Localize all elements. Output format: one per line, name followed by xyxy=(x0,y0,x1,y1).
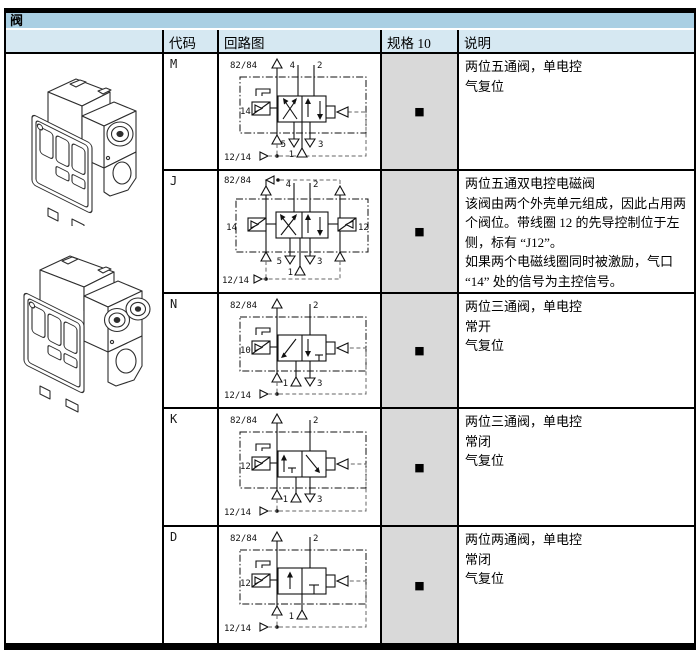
svg-text:4: 4 xyxy=(290,61,295,71)
svg-text:4: 4 xyxy=(286,180,291,190)
desc-cell-k: 两位三通阀，单电控 常闭 气复位 xyxy=(457,409,694,527)
desc-line: 两位五通双电控电磁阀 xyxy=(465,174,688,194)
svg-text:82/84: 82/84 xyxy=(224,176,251,186)
desc-line: 常闭 xyxy=(465,550,688,570)
desc-line: 气复位 xyxy=(465,77,688,97)
desc-cell-n: 两位三通阀，单电控 常开 气复位 xyxy=(457,294,694,409)
svg-text:12: 12 xyxy=(240,579,251,589)
svg-text:2: 2 xyxy=(313,301,318,311)
header-image-column xyxy=(6,30,162,54)
spec-marker: ■ xyxy=(414,462,424,473)
svg-text:12/14: 12/14 xyxy=(224,508,251,518)
desc-cell-d: 两位两通阀，单电控 常闭 气复位 xyxy=(457,527,694,643)
spec-cell-m: ■ xyxy=(380,54,457,171)
svg-text:1: 1 xyxy=(283,495,288,505)
desc-line: 气复位 xyxy=(465,569,688,589)
svg-text:82/84: 82/84 xyxy=(230,416,257,426)
header-code: 代码 xyxy=(162,30,217,54)
desc-line: 常闭 xyxy=(465,432,688,452)
svg-text:82/84: 82/84 xyxy=(230,301,257,311)
svg-text:3: 3 xyxy=(317,379,322,389)
valve-iso-drawing-single xyxy=(14,58,154,226)
circuit-diagram-3-2-nc: 82/84 12/14 xyxy=(220,410,380,526)
valve-iso-drawing-double xyxy=(10,234,158,420)
svg-text:12: 12 xyxy=(358,223,369,233)
circuit-diagram-5-2-single: 82/84 12/14 xyxy=(220,55,380,170)
desc-line: 该阀由两个外壳单元组成，因此占用两 xyxy=(465,194,688,214)
circuit-diagram-3-2-no: 82/84 12/14 xyxy=(220,295,380,408)
circuit-cell-n: 82/84 12/14 xyxy=(217,294,380,409)
desc-cell-j: 两位五通双电控电磁阀 该阀由两个外壳单元组成，因此占用两 个阀位。带线圈 12 … xyxy=(457,171,694,294)
spec-marker: ■ xyxy=(414,580,424,591)
desc-line: 两位五通阀，单电控 xyxy=(465,57,688,77)
circuit-cell-m: 82/84 12/14 xyxy=(217,54,380,171)
desc-line: 两位三通阀，单电控 xyxy=(465,412,688,432)
desc-line: “14” 处的信号为主控信号。 xyxy=(465,272,688,292)
svg-text:1: 1 xyxy=(283,379,288,389)
spec-marker: ■ xyxy=(414,106,424,117)
svg-text:14: 14 xyxy=(240,107,251,117)
svg-text:1: 1 xyxy=(288,268,293,278)
svg-text:12: 12 xyxy=(240,462,251,472)
svg-text:82/84: 82/84 xyxy=(230,61,257,71)
spec-cell-j: ■ xyxy=(380,171,457,294)
svg-text:2: 2 xyxy=(313,534,318,544)
svg-text:3: 3 xyxy=(317,257,322,267)
catalog-page: 阀 代码 回路图 规格 10 说明 xyxy=(0,0,700,658)
desc-line: 如果两个电磁线圈同时被激励，气口 xyxy=(465,252,688,272)
code-cell-k: K xyxy=(162,409,217,527)
svg-text:5: 5 xyxy=(277,257,282,267)
code-cell-d: D xyxy=(162,527,217,643)
valve-illustration-cell xyxy=(6,54,162,643)
header-desc: 说明 xyxy=(457,30,694,54)
svg-text:82/84: 82/84 xyxy=(230,534,257,544)
desc-line: 两位三通阀，单电控 xyxy=(465,297,688,317)
spec-cell-k: ■ xyxy=(380,409,457,527)
spec-marker: ■ xyxy=(414,226,424,237)
svg-text:12/14: 12/14 xyxy=(224,624,251,634)
desc-line: 气复位 xyxy=(465,451,688,471)
desc-line: 两位两通阀，单电控 xyxy=(465,530,688,550)
spec-marker: ■ xyxy=(414,345,424,356)
svg-text:12/14: 12/14 xyxy=(222,276,249,286)
header-circuit: 回路图 xyxy=(217,30,380,54)
svg-text:5: 5 xyxy=(281,140,286,150)
svg-text:14: 14 xyxy=(226,223,237,233)
code-cell-n: N xyxy=(162,294,217,409)
spec-cell-n: ■ xyxy=(380,294,457,409)
code-cell-j: J xyxy=(162,171,217,294)
spec-cell-d: ■ xyxy=(380,527,457,643)
desc-cell-m: 两位五通阀，单电控 气复位 xyxy=(457,54,694,171)
svg-text:12/14: 12/14 xyxy=(224,153,251,163)
desc-line: 常开 xyxy=(465,317,688,337)
svg-text:2: 2 xyxy=(317,61,322,71)
circuit-cell-d: 82/84 12/14 1 xyxy=(217,527,380,643)
desc-line: 侧，标有 “J12”。 xyxy=(465,233,688,253)
circuit-diagram-2-2-nc: 82/84 12/14 1 xyxy=(220,528,380,641)
desc-line: 个阀位。带线圈 12 的先导控制位于左 xyxy=(465,213,688,233)
svg-text:3: 3 xyxy=(318,140,323,150)
svg-text:3: 3 xyxy=(317,495,322,505)
svg-text:2: 2 xyxy=(313,416,318,426)
header-spec: 规格 10 xyxy=(380,30,457,54)
svg-text:1: 1 xyxy=(289,150,294,160)
valve-table: 阀 代码 回路图 规格 10 说明 xyxy=(4,8,696,650)
circuit-cell-k: 82/84 12/14 xyxy=(217,409,380,527)
circuit-cell-j: 82/84 xyxy=(217,171,380,294)
svg-text:1: 1 xyxy=(289,612,294,622)
table-title: 阀 xyxy=(6,13,694,30)
svg-text:12/14: 12/14 xyxy=(224,391,251,401)
code-cell-m: M xyxy=(162,54,217,171)
svg-text:10: 10 xyxy=(240,346,251,356)
desc-line: 气复位 xyxy=(465,336,688,356)
circuit-diagram-5-2-double: 82/84 xyxy=(220,172,380,293)
svg-text:2: 2 xyxy=(313,180,318,190)
